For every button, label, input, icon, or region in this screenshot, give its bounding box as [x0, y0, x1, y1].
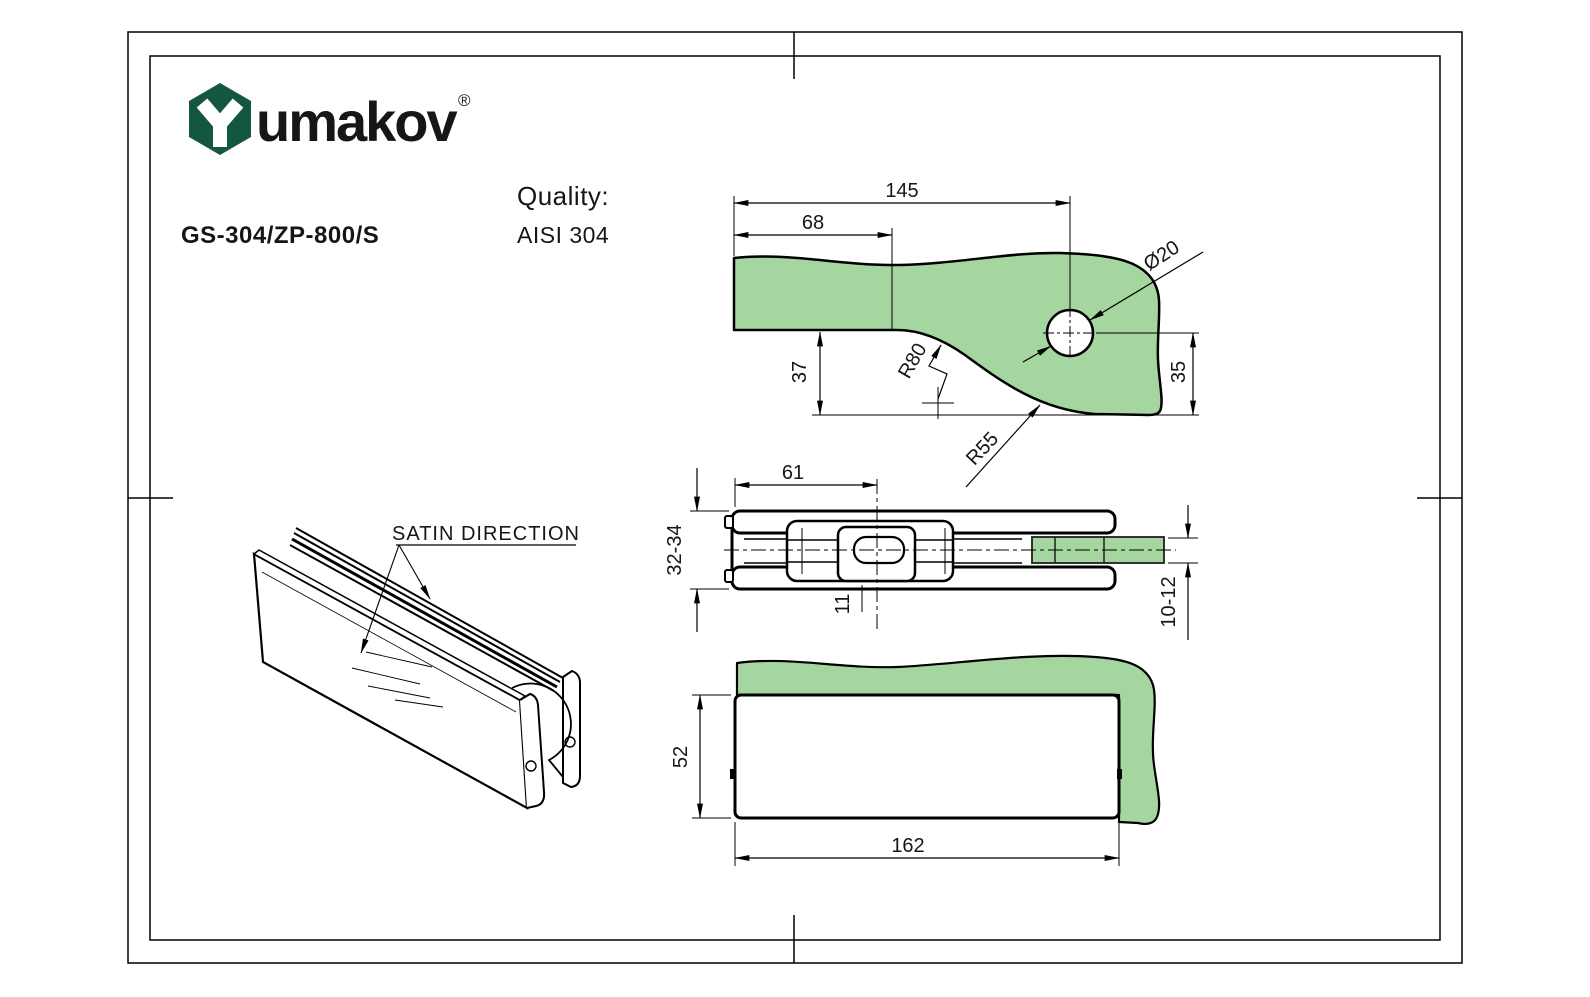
brand-logo: umakov ®: [189, 83, 471, 155]
section-view: 61 32-34 11 10-12: [664, 462, 1198, 640]
ext-10-12: [1168, 538, 1198, 563]
left-set-screw: [730, 769, 735, 779]
satin-leader-1: [399, 545, 430, 599]
dim-35: 35: [1168, 361, 1190, 383]
dim-145: 145: [885, 180, 918, 202]
glass-plan-shape: [734, 253, 1162, 415]
drawing-sheet: umakov ® GS-304/ZP-800/S Quality: AISI 3…: [0, 0, 1590, 997]
drawing-frame: [128, 32, 1462, 963]
brand-name: umakov: [256, 90, 457, 153]
cover-plate-front: [735, 695, 1119, 818]
dim-r55: R55: [962, 428, 1003, 470]
dim-61: 61: [782, 462, 804, 484]
dim-52: 52: [670, 746, 692, 768]
dim-37: 37: [789, 361, 811, 383]
quality-value: AISI 304: [517, 222, 609, 248]
satin-direction-label: SATIN DIRECTION: [392, 523, 580, 545]
technical-drawing: umakov ® GS-304/ZP-800/S Quality: AISI 3…: [0, 0, 1590, 997]
quality-label: Quality:: [517, 181, 609, 211]
left-screw-nub-top: [725, 516, 733, 528]
top-view: 145 68 37 35 R80 R55 Ø20: [734, 180, 1203, 487]
ext-162: [735, 822, 1119, 866]
dim-dia20: Ø20: [1140, 236, 1184, 275]
dim-162: 162: [891, 835, 924, 857]
outer-border: [128, 32, 1462, 963]
ext-52: [692, 695, 731, 818]
product-code: GS-304/ZP-800/S: [181, 222, 379, 249]
left-screw-nub-bottom: [725, 570, 733, 582]
registered-mark-icon: ®: [458, 91, 471, 110]
dim-r80: R80: [894, 340, 931, 383]
front-view: 52 162: [670, 656, 1159, 866]
right-set-screw: [1117, 769, 1122, 779]
dim-10-12: 10-12: [1158, 576, 1180, 627]
ext-32-34: [690, 511, 729, 589]
dim-32-34: 32-34: [664, 524, 686, 575]
dim-11: 11: [832, 594, 854, 615]
dim-68: 68: [802, 212, 824, 234]
iso-view: SATIN DIRECTION: [254, 523, 580, 808]
